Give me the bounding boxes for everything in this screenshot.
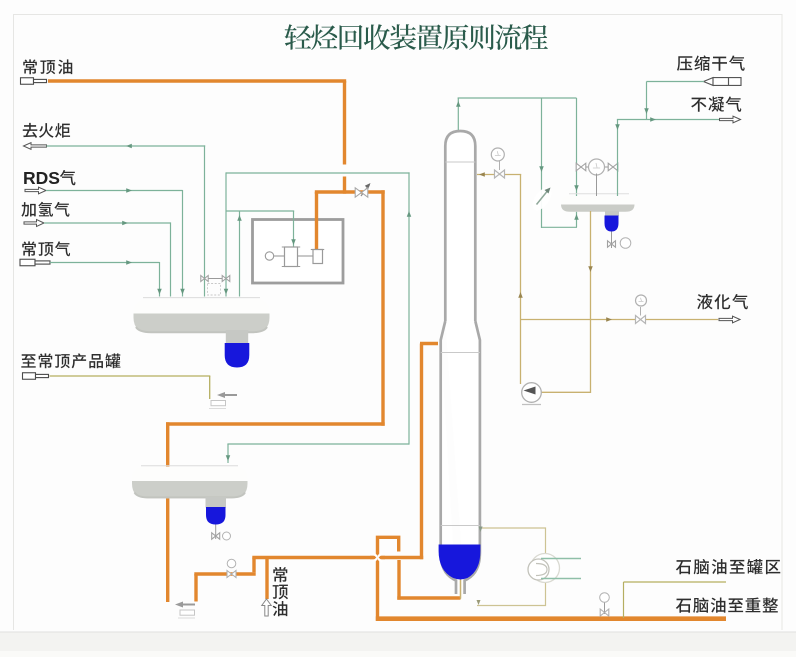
svg-text:RDS: RDS: [23, 168, 60, 188]
